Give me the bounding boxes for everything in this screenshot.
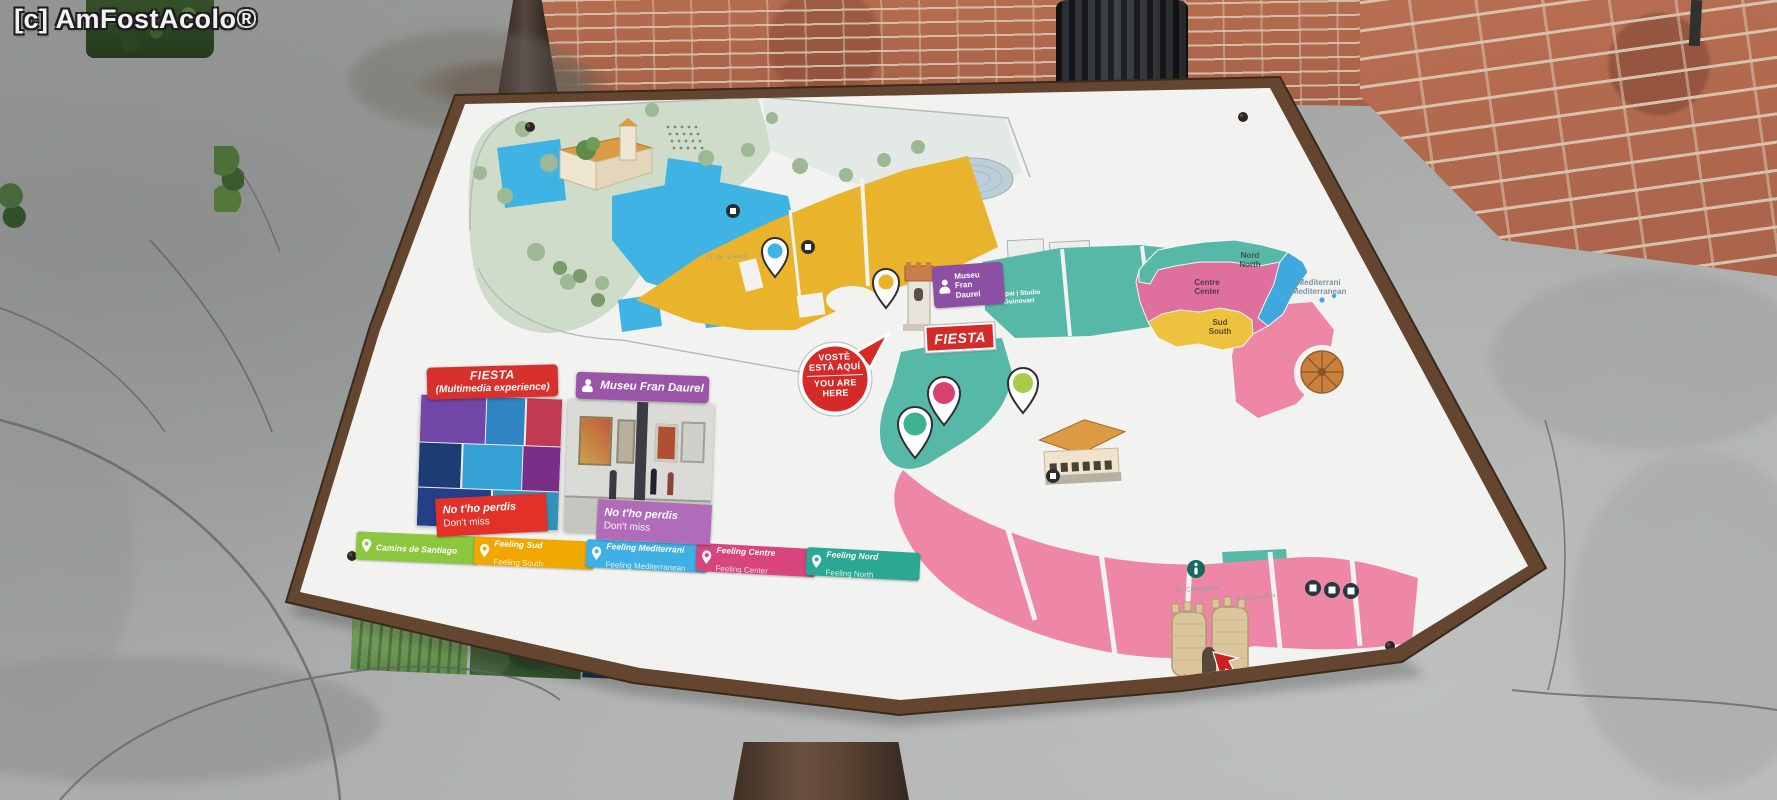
fiesta-map-sign-text: FIESTA bbox=[934, 328, 987, 347]
inset-label-nord: Nord North bbox=[1228, 252, 1272, 270]
inset-med-en: Mediterranean bbox=[1280, 288, 1358, 297]
inset-label-sud: Sud South bbox=[1198, 319, 1242, 337]
experience-header-sud: Feeling Sud Feeling South bbox=[473, 536, 594, 569]
experience-nord-en: Feeling North bbox=[825, 568, 873, 580]
info-icon bbox=[1187, 560, 1205, 578]
museu-dont-miss-badge: No t'ho perdis Don't miss bbox=[596, 499, 712, 545]
inset-nord-en: North bbox=[1228, 261, 1272, 270]
fiesta-promo-subtitle: (Multimedia experience) bbox=[436, 382, 550, 396]
inset-label-mediterrani: Mediterrani Mediterranean bbox=[1280, 279, 1358, 297]
fiesta-map-sign: FIESTA bbox=[924, 322, 995, 353]
photo-of-park-map-board: [c] AmFostAcolo® VOSTÈ ESTÀ AQUÍ YOU ARE… bbox=[0, 0, 1777, 800]
pin-icon bbox=[591, 546, 603, 561]
pin-icon bbox=[811, 554, 823, 569]
museu-sign-line3: Daurel bbox=[955, 289, 980, 300]
museu-promo-header: Museu Fran Daurel bbox=[576, 372, 710, 404]
fiesta-promo-header: FIESTA (Multimedia experience) bbox=[427, 364, 559, 399]
experience-header-nord: Feeling Nord Feeling North bbox=[805, 547, 920, 581]
museu-map-sign-text: Museu Fran Daurel bbox=[954, 270, 981, 300]
bust-icon bbox=[938, 279, 952, 294]
bust-icon bbox=[581, 378, 594, 392]
pavilion-illustration bbox=[1294, 345, 1350, 401]
map-board-artwork bbox=[0, 0, 1777, 800]
museu-map-sign: Museu Fran Daurel bbox=[932, 262, 1006, 309]
inset-centre-en: Center bbox=[1184, 288, 1230, 297]
experience-header-mediterrani: Feeling Mediterrani Feeling Mediterranea… bbox=[585, 539, 708, 573]
exit-icon bbox=[1272, 672, 1344, 718]
experience-camins-label: Camins de Santiago bbox=[376, 542, 458, 556]
experience-med-en: Feeling Mediterranean bbox=[605, 560, 685, 573]
experience-sud-ca: Feeling Sud bbox=[494, 539, 543, 551]
experience-med-ca: Feeling Mediterrani bbox=[606, 541, 684, 555]
pin-icon bbox=[479, 544, 491, 558]
inset-label-centre: Centre Center bbox=[1184, 279, 1230, 297]
you-are-here-ca-line2: ESTÀ AQUÍ bbox=[799, 361, 871, 374]
experience-centre-ca: Feeling Centre bbox=[716, 545, 775, 558]
street-label-pl-font: Pl. de la Font bbox=[706, 253, 747, 261]
inset-sud-en: South bbox=[1198, 328, 1242, 337]
experience-nord-ca: Feeling Nord bbox=[826, 549, 878, 562]
museu-sign-line1: Museu bbox=[954, 270, 980, 281]
museu-promo-title: Museu Fran Daurel bbox=[600, 379, 704, 396]
bell-tower-illustration bbox=[903, 262, 934, 331]
experience-header-camins: Camins de Santiago bbox=[355, 531, 478, 564]
pin-icon bbox=[361, 539, 373, 553]
you-are-here-label: VOSTÈ ESTÀ AQUÍ YOU ARE HERE bbox=[798, 351, 872, 400]
photo-watermark: [c] AmFostAcolo® bbox=[14, 4, 257, 35]
experience-sud-en: Feeling South bbox=[493, 557, 543, 568]
fiesta-promo-title: FIESTA bbox=[470, 369, 515, 384]
experience-centre-en: Feeling Center bbox=[715, 564, 768, 576]
museu-sign-line2: Fran bbox=[955, 280, 973, 290]
fiesta-dont-miss-badge: No t'ho perdis Don't miss bbox=[435, 493, 548, 537]
pin-icon bbox=[701, 550, 713, 565]
